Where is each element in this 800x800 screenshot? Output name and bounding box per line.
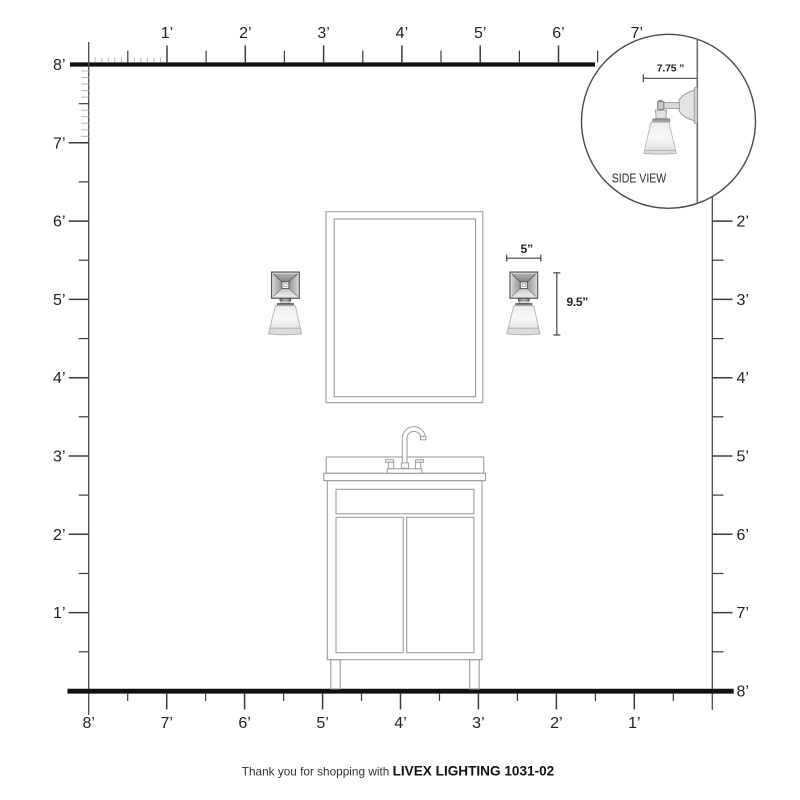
svg-text:7’: 7’ [160, 715, 172, 732]
svg-text:7.75 ”: 7.75 ” [657, 63, 684, 75]
svg-text:6’: 6’ [737, 527, 749, 544]
svg-text:4’: 4’ [394, 715, 406, 732]
svg-text:4’: 4’ [737, 370, 749, 387]
svg-text:6’: 6’ [552, 25, 564, 42]
svg-text:5’: 5’ [316, 715, 328, 732]
svg-text:8’: 8’ [737, 684, 749, 701]
svg-text:7’: 7’ [737, 605, 749, 622]
svg-text:1’: 1’ [628, 715, 640, 732]
svg-text:4’: 4’ [53, 370, 65, 387]
svg-text:2’: 2’ [550, 715, 562, 732]
svg-text:4’: 4’ [396, 25, 408, 42]
svg-text:6’: 6’ [53, 214, 65, 231]
svg-text:2’: 2’ [53, 527, 65, 544]
svg-text:8’: 8’ [53, 57, 65, 74]
svg-text:8’: 8’ [82, 715, 94, 732]
svg-text:2’: 2’ [239, 25, 251, 42]
svg-text:Thank you for shopping with LI: Thank you for shopping with LIVEX LIGHTI… [242, 764, 555, 779]
svg-text:7’: 7’ [53, 135, 65, 152]
svg-text:5”: 5” [520, 242, 533, 256]
svg-text:5’: 5’ [737, 449, 749, 466]
svg-text:SIDE VIEW: SIDE VIEW [612, 171, 667, 186]
svg-text:6’: 6’ [238, 715, 250, 732]
svg-text:1’: 1’ [161, 25, 173, 42]
svg-text:9.5”: 9.5” [567, 295, 589, 309]
svg-text:5’: 5’ [53, 292, 65, 309]
svg-text:3’: 3’ [472, 715, 484, 732]
svg-text:2’: 2’ [737, 214, 749, 231]
svg-text:5’: 5’ [474, 25, 486, 42]
svg-text:3’: 3’ [317, 25, 329, 42]
svg-text:1’: 1’ [53, 605, 65, 622]
svg-text:3’: 3’ [737, 292, 749, 309]
svg-text:3’: 3’ [53, 449, 65, 466]
